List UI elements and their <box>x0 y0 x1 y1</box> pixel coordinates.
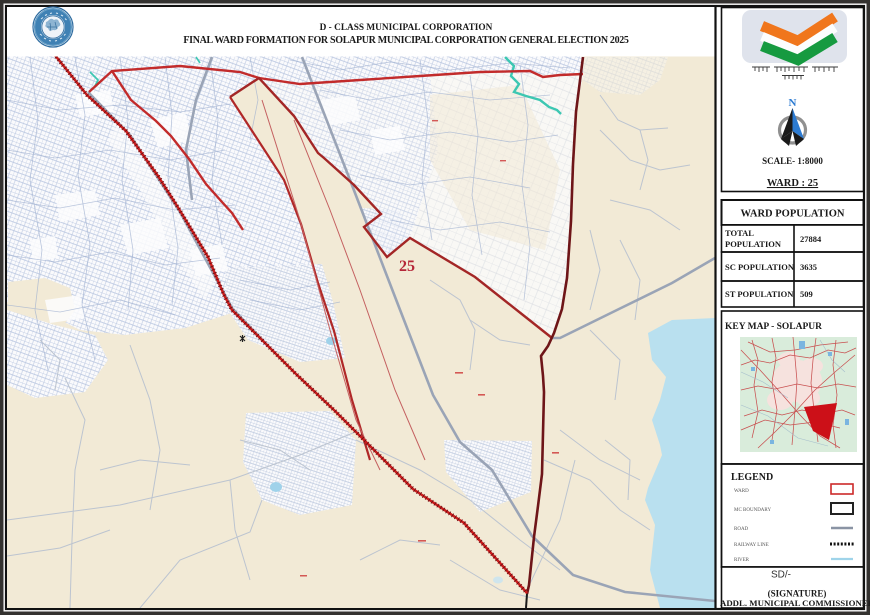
svg-text:ST POPULATION: ST POPULATION <box>725 289 794 299</box>
svg-text:WARD : 25: WARD : 25 <box>767 178 818 189</box>
svg-text:ROAD: ROAD <box>734 527 749 532</box>
svg-text:(SIGNATURE): (SIGNATURE) <box>768 589 827 599</box>
svg-text:3635: 3635 <box>800 262 817 272</box>
svg-text:25: 25 <box>399 258 415 275</box>
svg-text:WARD POPULATION: WARD POPULATION <box>741 209 845 220</box>
svg-text:27884: 27884 <box>800 234 822 244</box>
svg-text:FINAL WARD FORMATION FOR SOLAP: FINAL WARD FORMATION FOR SOLAPUR MUNICIP… <box>183 35 629 46</box>
svg-text:D - CLASS MUNICIPAL CORPORATIO: D - CLASS MUNICIPAL CORPORATION <box>320 23 493 33</box>
svg-text:MC BOUNDARY: MC BOUNDARY <box>734 508 771 513</box>
svg-text:N: N <box>789 97 797 109</box>
svg-text:SD/-: SD/- <box>771 570 791 581</box>
svg-text:509: 509 <box>800 289 813 299</box>
svg-text:WARD: WARD <box>734 489 749 494</box>
svg-text:POPULATION: POPULATION <box>725 239 782 249</box>
svg-text:SCALE- 1:8000: SCALE- 1:8000 <box>762 156 823 166</box>
svg-text:KEY MAP - SOLAPUR: KEY MAP - SOLAPUR <box>725 322 822 332</box>
svg-text:TOTAL: TOTAL <box>725 228 754 238</box>
svg-text:ADDL. MUNICIPAL COMMISSIONER: ADDL. MUNICIPAL COMMISSIONER <box>720 598 870 608</box>
svg-text:RIVER: RIVER <box>734 558 750 563</box>
svg-text:RAILWAY LINE: RAILWAY LINE <box>734 543 769 548</box>
svg-text:LEGEND: LEGEND <box>731 472 773 483</box>
svg-text:SC POPULATION: SC POPULATION <box>725 262 795 272</box>
